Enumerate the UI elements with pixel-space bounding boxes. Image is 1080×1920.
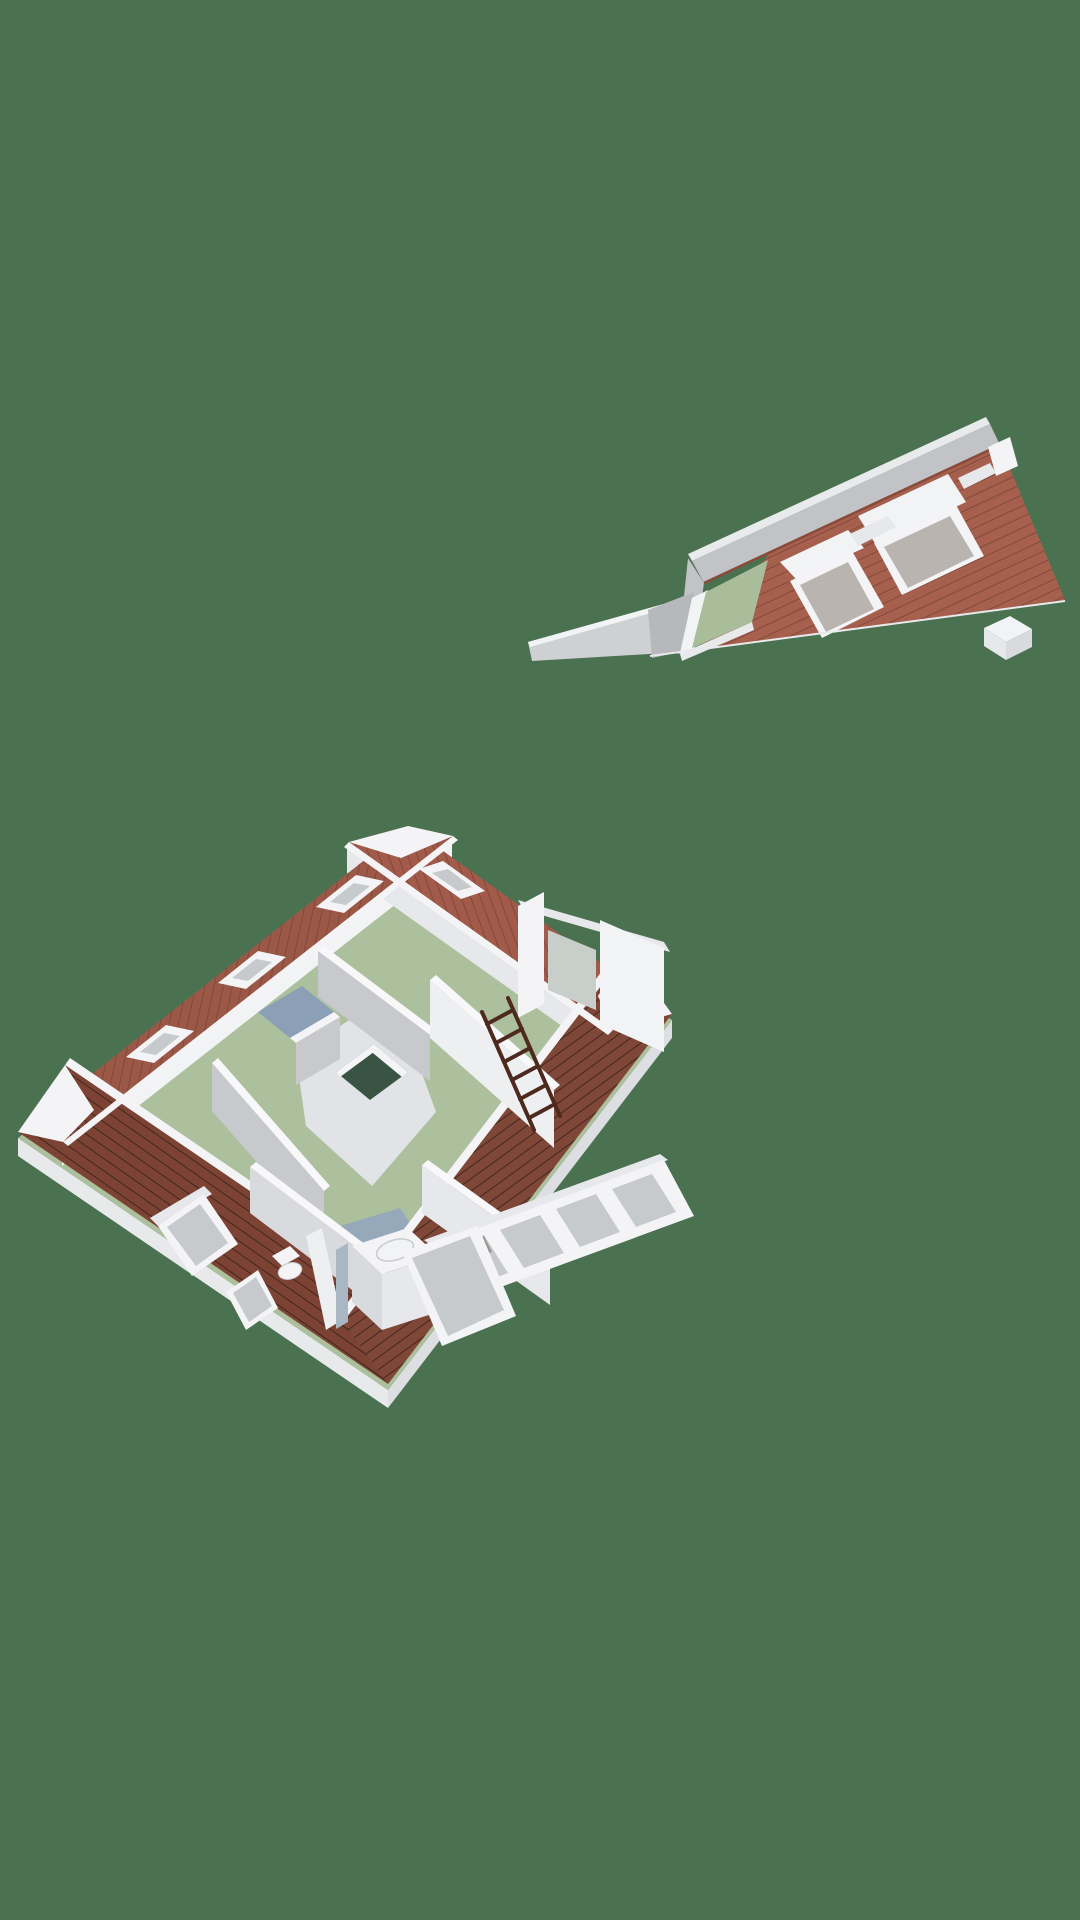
floorplan-3d-render xyxy=(0,0,1080,1920)
dormer-cheek xyxy=(518,892,544,1018)
render-stage xyxy=(0,0,1080,1920)
radiator-panel xyxy=(336,1243,348,1329)
